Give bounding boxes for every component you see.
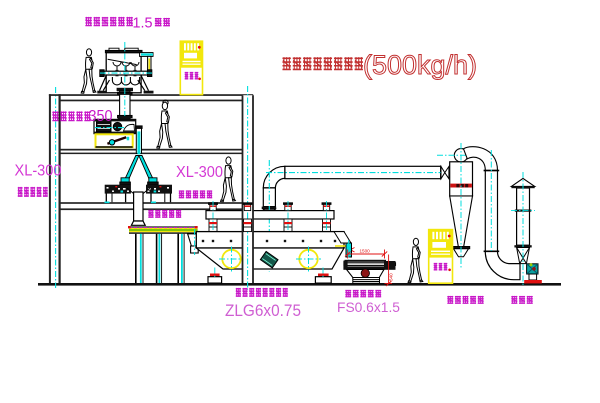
svg-text:350: 350 <box>89 108 113 125</box>
svg-text:540: 540 <box>388 273 393 281</box>
svg-text:XL-300: XL-300 <box>15 163 62 180</box>
svg-text:ZLG6x0.75: ZLG6x0.75 <box>225 302 301 320</box>
svg-text:1.5: 1.5 <box>133 15 153 32</box>
svg-text:1500: 1500 <box>360 249 371 254</box>
svg-text:(500kg/h): (500kg/h) <box>363 50 477 80</box>
svg-text:FS0.6x1.5: FS0.6x1.5 <box>337 300 400 315</box>
svg-text:XL-300: XL-300 <box>176 164 223 181</box>
